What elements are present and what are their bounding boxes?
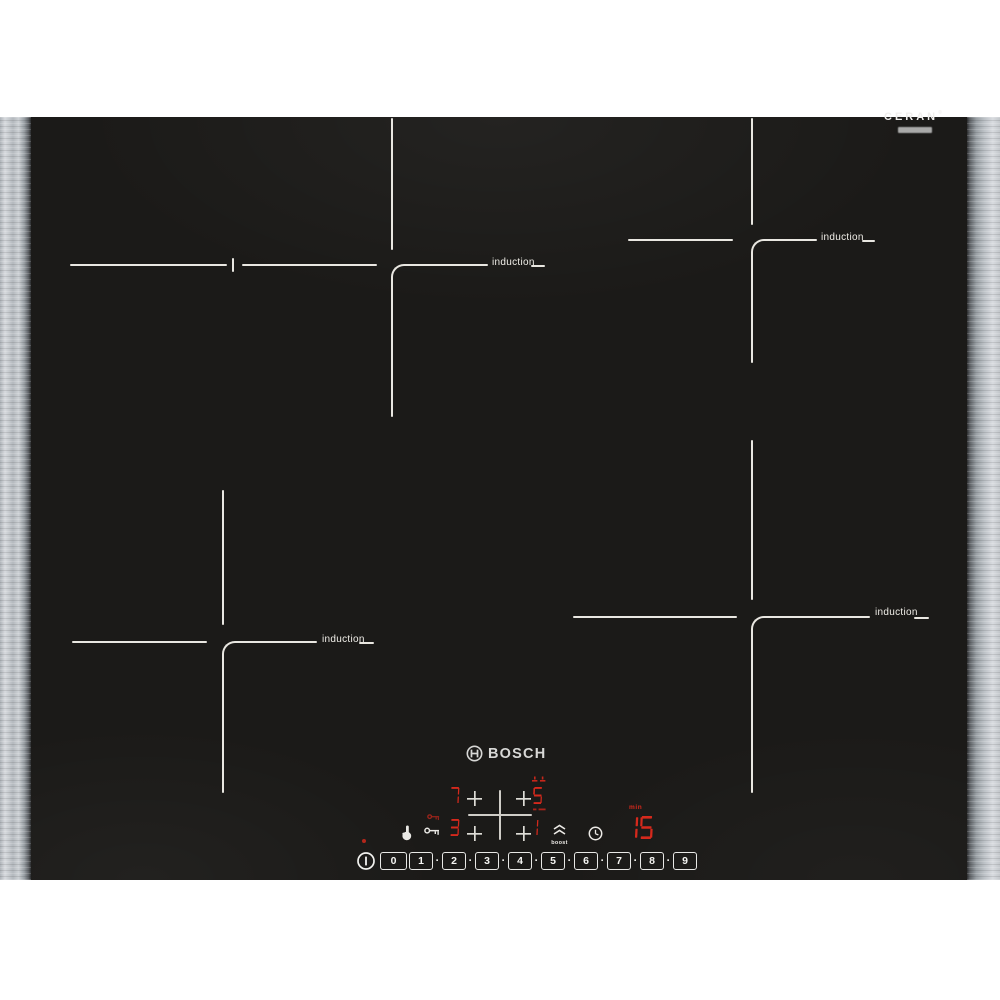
slider-dot: · [435, 856, 440, 866]
wipe-protection-key-hand-icon[interactable] [400, 825, 414, 841]
zone-line [404, 264, 488, 266]
steel-frame-left [0, 117, 31, 880]
control-strip: 0 1 · 2 · 3 · 4 · 5 · 6 · 7 · 8 · 9 [356, 850, 697, 871]
level-key-7[interactable]: 7 [607, 852, 631, 870]
zone-line [764, 239, 817, 241]
zone-line [72, 641, 207, 643]
boost-label: boost [551, 840, 568, 846]
slider-dot: · [633, 856, 638, 866]
zone-line [751, 118, 753, 225]
zone-line [628, 239, 733, 241]
zone-map-cross [499, 790, 501, 840]
frying-sensor-indicator-icon [533, 807, 547, 813]
steel-frame-right [967, 117, 1000, 880]
bridge-zone-indicator-icon [532, 776, 546, 784]
zone-line [391, 118, 393, 250]
zone-line [242, 264, 377, 266]
child-lock-key-icon[interactable] [424, 826, 440, 836]
slider-dot: · [666, 856, 671, 866]
zone-line [751, 252, 753, 363]
slider-dot: · [534, 856, 539, 866]
bosch-armature-icon [466, 745, 483, 762]
zone-select-key-top-right[interactable] [516, 791, 531, 806]
level-key-2[interactable]: 2 [442, 852, 466, 870]
zone-label: induction [492, 257, 535, 269]
zone-label: induction [875, 607, 918, 619]
zone-line [764, 616, 870, 618]
zone-label: induction [322, 634, 365, 646]
level-display-top-left [450, 787, 459, 804]
boost-chevrons-icon [552, 824, 567, 835]
power-button-icon[interactable] [356, 851, 376, 871]
bosch-logo: BOSCH [466, 745, 546, 762]
timer-display [625, 816, 653, 839]
ceran-mark: ® [938, 110, 942, 116]
zone-line [222, 654, 224, 793]
zone-line [391, 277, 393, 417]
bosch-wordmark: BOSCH [488, 746, 546, 762]
level-key-0[interactable]: 0 [380, 852, 407, 870]
ceran-small-print [898, 127, 932, 133]
slider-dot: · [567, 856, 572, 866]
level-key-3[interactable]: 3 [475, 852, 499, 870]
zone-label: induction [821, 232, 864, 244]
level-display-bottom-left [450, 819, 459, 836]
zone-line [573, 616, 737, 618]
level-key-6[interactable]: 6 [574, 852, 598, 870]
product-photo-bosch-induction-hob: CERAN® induction induction induction ind… [0, 0, 1000, 1000]
slider-dot: · [468, 856, 473, 866]
zone-dash [359, 642, 374, 644]
slider-dot: · [501, 856, 506, 866]
zone-line [751, 440, 753, 600]
zone-select-key-bottom-left[interactable] [467, 826, 482, 841]
zone-line [70, 264, 227, 266]
level-key-1[interactable]: 1 [409, 852, 433, 870]
zone-dash [862, 240, 875, 242]
zone-line [222, 490, 224, 625]
zone-select-key-top-left[interactable] [467, 791, 482, 806]
level-key-5[interactable]: 5 [541, 852, 565, 870]
power-indicator-dot [362, 839, 366, 843]
level-key-9[interactable]: 9 [673, 852, 697, 870]
level-display-bottom-right [529, 819, 538, 836]
level-key-4[interactable]: 4 [508, 852, 532, 870]
slider-dot: · [600, 856, 605, 866]
zone-tick [232, 258, 234, 272]
zone-dash [914, 617, 929, 619]
ceran-logo: CERAN® [884, 110, 942, 123]
timer-unit-label: min [629, 804, 642, 811]
level-key-8[interactable]: 8 [640, 852, 664, 870]
timer-key-clock-icon[interactable] [588, 826, 603, 841]
zone-line [751, 629, 753, 793]
level-display-top-right [533, 787, 542, 804]
zone-line [235, 641, 317, 643]
zone-dash [531, 265, 545, 267]
child-lock-indicator-key-icon [427, 813, 440, 821]
boost-key[interactable]: boost [551, 822, 568, 846]
